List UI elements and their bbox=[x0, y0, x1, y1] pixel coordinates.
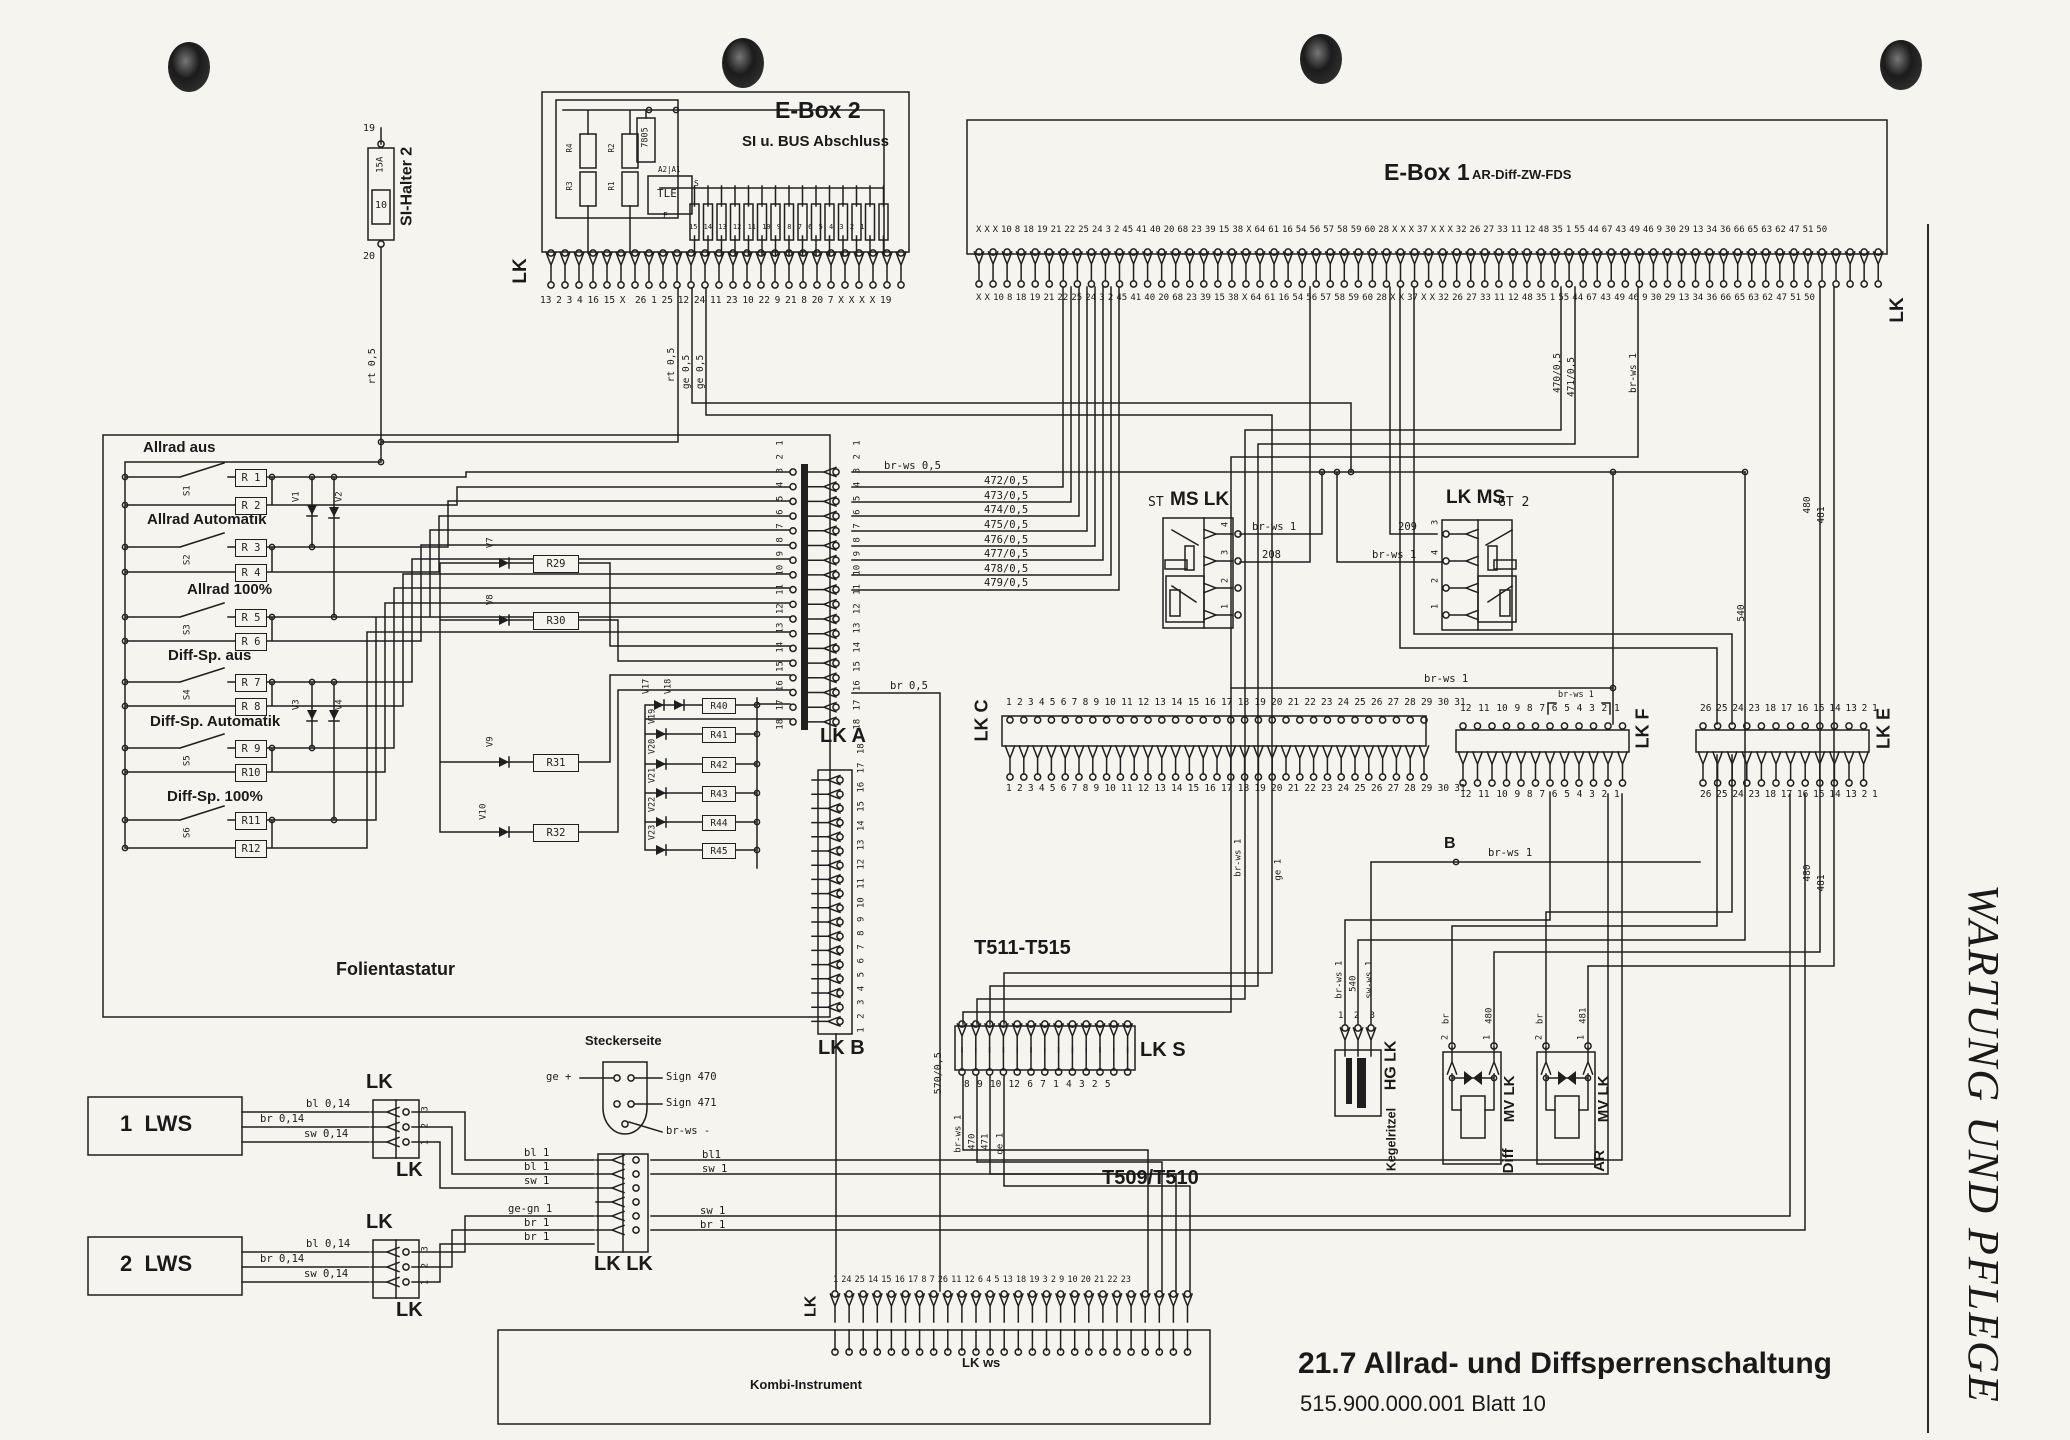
lws1-lk-top: LK bbox=[366, 1072, 393, 1093]
ebox2-drop-rt: rt 0,5 bbox=[667, 337, 677, 393]
punch-hole-3 bbox=[1300, 34, 1342, 84]
ms-gt-title: LK MS bbox=[1446, 488, 1505, 508]
ebox2-pin-f: F bbox=[663, 212, 668, 220]
keypad-sw-4: S5 bbox=[183, 741, 192, 781]
lkb-label: LK B bbox=[818, 1038, 865, 1059]
lkf-pins-bottom: 12 11 10 9 8 7 6 5 4 3 2 1 bbox=[1460, 790, 1620, 800]
resistor-r12: R12 bbox=[235, 840, 267, 858]
diode-v2: V2 bbox=[335, 482, 344, 512]
stecker-sign471: Sign 471 bbox=[666, 1098, 717, 1109]
lks-connector bbox=[957, 1021, 1132, 1075]
ebox2-strip-numbers: 15 14 13 12 11 10 9 8 7 6 5 4 3 2 1 bbox=[689, 224, 865, 231]
resistor-r6: R 6 bbox=[235, 633, 267, 651]
ms-gt-wire3: 209 bbox=[1398, 522, 1417, 533]
ebox2-ic: TLE bbox=[657, 188, 677, 200]
ebox2-drop-ge2: ge 0,5 bbox=[696, 344, 706, 400]
t511-heading: T511-T515 bbox=[974, 938, 1071, 959]
wire-brws05: br-ws 0,5 bbox=[884, 461, 941, 472]
ebox2-r4: R4 bbox=[566, 136, 574, 160]
punch-hole-1 bbox=[168, 42, 210, 92]
lke-pins-bottom: 26 25 24 23 18 17 16 15 14 13 2 1 bbox=[1700, 790, 1878, 800]
midlk-in-0: bl 1 bbox=[524, 1148, 549, 1159]
ebox2-regulator: 7805 bbox=[642, 107, 651, 167]
keypad-label: Folientastatur bbox=[336, 960, 455, 979]
resistor-r32: R32 bbox=[533, 824, 579, 842]
mvdiff-w1: 480 bbox=[1485, 998, 1494, 1034]
doc-number: 515.900.000.001 Blatt 10 bbox=[1300, 1392, 1546, 1415]
mvdiff-label1: Diff bbox=[1501, 1136, 1517, 1186]
midlk-in-1: bl 1 bbox=[524, 1162, 549, 1173]
lws1-label: 1 LWS bbox=[120, 1112, 192, 1135]
midlk-out-3: br 1 bbox=[700, 1220, 725, 1231]
ebox2-drop-ge1: ge 0,5 bbox=[682, 344, 692, 400]
resistor-r43: R43 bbox=[702, 786, 736, 802]
lkc-drop-brws1: br-ws 1 bbox=[1234, 828, 1243, 888]
punch-hole-2 bbox=[722, 38, 764, 88]
wire-rt05-si: rt 0,5 bbox=[368, 336, 379, 396]
lws1-lk-bottom: LK bbox=[396, 1160, 423, 1181]
wire-479: 479/0,5 bbox=[984, 578, 1028, 589]
lws2-label: 2 LWS bbox=[120, 1252, 192, 1275]
lkc-pins-top: 1 2 3 4 5 6 7 8 9 10 11 12 13 14 15 16 1… bbox=[1006, 698, 1466, 708]
si-pin-bottom: 20 bbox=[363, 252, 375, 263]
kombi-connector bbox=[830, 1291, 1192, 1355]
lka-pin-numbers-right: 18 17 16 15 14 13 12 11 10 9 8 7 6 5 4 3… bbox=[853, 460, 862, 730]
resistor-r29: R29 bbox=[533, 555, 579, 573]
lka-pin-numbers-left: 18 17 16 15 14 13 12 11 10 9 8 7 6 5 4 3… bbox=[776, 460, 785, 730]
ms-gt-pin2: 2 bbox=[1432, 570, 1441, 590]
wire-480-bottom: 480 bbox=[1803, 855, 1813, 891]
diode-v7: V7 bbox=[486, 528, 495, 558]
mvar-w1: 481 bbox=[1579, 998, 1588, 1034]
keypad-sw-0: S1 bbox=[183, 471, 192, 511]
resistor-r40: R40 bbox=[702, 698, 736, 714]
lkf-bracket-label: br-ws 1 bbox=[1558, 691, 1594, 700]
lkb-pin-numbers: 1 2 3 4 5 6 7 8 9 10 11 12 13 14 15 16 1… bbox=[857, 763, 866, 1033]
diode-v20: V20 bbox=[649, 731, 658, 761]
resistor-r44: R44 bbox=[702, 815, 736, 831]
lws1-w1: bl 0,14 bbox=[306, 1099, 350, 1110]
keypad-sw-2: S3 bbox=[183, 610, 192, 650]
ebox2-title: E-Box 2 bbox=[775, 98, 861, 122]
ms-st-pin1: 1 bbox=[1222, 596, 1231, 616]
ms-gt-pin1: 1 bbox=[1432, 596, 1441, 616]
kombi-label: Kombi-Instrument bbox=[750, 1378, 862, 1392]
ebox2-lk-label: LK bbox=[511, 236, 531, 306]
kombi-lk-ws: LK ws bbox=[962, 1356, 1000, 1370]
page-title: 21.7 Allrad- und Diffsperrenschaltung bbox=[1298, 1348, 1832, 1380]
keypad-title-0: Allrad aus bbox=[143, 440, 216, 456]
ms-st-wire3: 208 bbox=[1262, 550, 1281, 561]
lks-pins: 8 9 10 12 6 7 1 4 3 2 5 bbox=[964, 1080, 1111, 1090]
diode-v8: V8 bbox=[486, 585, 495, 615]
ebox2-pin-row: 13 2 3 4 16 15 X 26 1 25 12 24 11 23 10 … bbox=[540, 296, 892, 306]
lks-drop-3: ge 1 bbox=[996, 1124, 1005, 1164]
wire-570: 570/0,5 bbox=[934, 1041, 945, 1105]
lkc-drop-ge1: ge 1 bbox=[1274, 848, 1283, 892]
wire-476: 476/0,5 bbox=[984, 535, 1028, 546]
mvdiff-label2: MV LK bbox=[1502, 1067, 1518, 1131]
ebox2-pin-s: S bbox=[694, 180, 699, 188]
wiring-svg bbox=[0, 0, 2070, 1440]
si-fuse-rating: 15A bbox=[376, 135, 385, 195]
resistor-r3: R 3 bbox=[235, 539, 267, 557]
mvdiff-w2: br bbox=[1442, 1004, 1451, 1034]
ebox1-lk-label: LK bbox=[1888, 275, 1908, 345]
lws2-w3: sw 0,14 bbox=[304, 1269, 348, 1280]
stecker-title: Steckerseite bbox=[585, 1034, 662, 1048]
ms-st-title: ST bbox=[1148, 496, 1164, 510]
stecker-bottom: br-ws - bbox=[666, 1126, 710, 1137]
lws-kombi-wiring bbox=[242, 794, 1805, 1291]
lks-drop-1: 470 bbox=[968, 1122, 977, 1162]
lws2-lk-top: LK bbox=[366, 1212, 393, 1233]
ebox2-ic-pins: A2|A1 bbox=[658, 166, 681, 174]
resistor-r11: R11 bbox=[235, 812, 267, 830]
ms-gt-wire4: br-ws 1 bbox=[1372, 550, 1416, 561]
diode-v3: V3 bbox=[292, 690, 301, 720]
ms-st-pin4: 4 bbox=[1222, 514, 1231, 534]
resistor-r5: R 5 bbox=[235, 609, 267, 627]
wire-480-top: 480 bbox=[1803, 487, 1813, 523]
ms-st-title2: MS LK bbox=[1170, 490, 1229, 510]
lkc-label: LK C bbox=[973, 685, 992, 755]
lws2-w1: bl 0,14 bbox=[306, 1239, 350, 1250]
ebox2-drops-and-lkc-risers bbox=[381, 287, 1638, 1024]
si-slot: 10 bbox=[375, 201, 387, 212]
resistor-r1: R 1 bbox=[235, 469, 267, 487]
midlk-label: LK LK bbox=[594, 1254, 653, 1275]
resistor-r42: R42 bbox=[702, 757, 736, 773]
diode-v4: V4 bbox=[335, 690, 344, 720]
kegel-drop-0: br-ws 1 bbox=[1335, 951, 1344, 1009]
resistor-r9: R 9 bbox=[235, 740, 267, 758]
diode-v10: V10 bbox=[479, 797, 488, 827]
resistor-r7: R 7 bbox=[235, 674, 267, 692]
stecker-left: ge + bbox=[546, 1072, 571, 1083]
ms-gt-pin3: 3 bbox=[1432, 512, 1441, 532]
diode-v18: V18 bbox=[665, 671, 674, 701]
midlk-out-1: sw 1 bbox=[702, 1164, 727, 1175]
mvar-w2: br bbox=[1536, 1004, 1545, 1034]
midlk-out-2: sw 1 bbox=[700, 1206, 725, 1217]
kegel-drop-2: sw-ws 1 bbox=[1365, 954, 1374, 1006]
resistor-r8: R 8 bbox=[235, 698, 267, 716]
diode-v9: V9 bbox=[486, 727, 495, 757]
keypad-sw-1: S2 bbox=[183, 540, 192, 580]
ebox2-subtitle: SI u. BUS Abschluss bbox=[742, 134, 889, 150]
lkf-connector bbox=[1458, 723, 1627, 786]
lke-label: LK E bbox=[1875, 693, 1894, 763]
ms-st-pin2: 2 bbox=[1222, 570, 1231, 590]
lws2-pins: 1 2 3 bbox=[421, 1242, 430, 1290]
right-side-wiring bbox=[1231, 287, 1834, 1044]
wire-470-05: 470/0,5 bbox=[1553, 342, 1563, 404]
stecker-sign470: Sign 470 bbox=[666, 1072, 717, 1083]
midlk-in-4: br 1 bbox=[524, 1218, 549, 1229]
lkf-pins-top: 12 11 10 9 8 7 6 5 4 3 2 1 bbox=[1460, 704, 1620, 714]
ebox2-r2: R2 bbox=[608, 136, 616, 160]
wire-481-top: 481 bbox=[1817, 497, 1827, 533]
kegel-label1: Kegelritzel bbox=[1385, 1085, 1398, 1195]
wire-brws1-b: br-ws 1 bbox=[1488, 848, 1532, 859]
ms-st-wire4: br-ws 1 bbox=[1252, 522, 1296, 533]
ebox2-connector bbox=[546, 186, 905, 288]
punch-hole-4 bbox=[1880, 40, 1922, 90]
resistor-r2: R 2 bbox=[235, 497, 267, 515]
lws2-w2: br 0,14 bbox=[260, 1254, 304, 1265]
wire-473: 473/0,5 bbox=[984, 491, 1028, 502]
wire-477: 477/0,5 bbox=[984, 549, 1028, 560]
ebox1-subtitle: AR-Diff-ZW-FDS bbox=[1472, 168, 1571, 182]
diode-v17: V17 bbox=[643, 671, 652, 701]
diode-v21: V21 bbox=[649, 760, 658, 790]
mv-valve-internals bbox=[1452, 1071, 1588, 1110]
wire-474: 474/0,5 bbox=[984, 505, 1028, 516]
resistor-r10: R10 bbox=[235, 764, 267, 782]
lks-drop-2: 471 bbox=[981, 1122, 990, 1162]
wire-472: 472/0,5 bbox=[984, 476, 1028, 487]
midlk-in-5: br 1 bbox=[524, 1232, 549, 1243]
wire-540: 540 bbox=[1737, 593, 1747, 633]
diode-v23: V23 bbox=[649, 817, 658, 847]
lws1-w3: sw 0,14 bbox=[304, 1129, 348, 1140]
wire-br05: br 0,5 bbox=[890, 681, 928, 692]
lka-connector bbox=[790, 467, 839, 726]
ms-gt-title2: GT 2 bbox=[1498, 496, 1529, 510]
resistor-r4: R 4 bbox=[235, 564, 267, 582]
wire-471-05: 471/0,5 bbox=[1567, 346, 1577, 408]
lks-label: LK S bbox=[1140, 1040, 1186, 1061]
mvar-label2: MV LK bbox=[1596, 1067, 1612, 1131]
lkf-label: LK F bbox=[1634, 693, 1653, 763]
kombi-lk: LK bbox=[804, 1276, 821, 1336]
resistor-r45: R45 bbox=[702, 843, 736, 859]
lkc-connector bbox=[1005, 717, 1428, 780]
lws1-pins: 1 2 3 bbox=[421, 1102, 430, 1150]
kegel-drop-1: 540 bbox=[1349, 964, 1358, 1004]
resistor-r30: R30 bbox=[533, 612, 579, 630]
junction-b-label: B bbox=[1444, 836, 1456, 853]
lke-connector bbox=[1698, 723, 1868, 786]
si-pin-top: 19 bbox=[363, 124, 375, 135]
keypad-title-5: Diff-Sp. 100% bbox=[167, 789, 263, 805]
ebox1-pin-row-bottom: X X 10 8 18 19 21 22 25 24 3 2 45 41 40 … bbox=[976, 294, 1815, 303]
midlk-in-2: sw 1 bbox=[524, 1176, 549, 1187]
ms-st-pin3: 3 bbox=[1222, 542, 1231, 562]
si-halter-label: SI-Halter 2 bbox=[400, 126, 417, 246]
lkc-pins-bottom: 1 2 3 4 5 6 7 8 9 10 11 12 13 14 15 16 1… bbox=[1006, 784, 1466, 794]
diode-v19: V19 bbox=[649, 701, 658, 731]
diode-v1: V1 bbox=[292, 482, 301, 512]
lkb-connector bbox=[812, 775, 843, 1026]
wire-478: 478/0,5 bbox=[984, 564, 1028, 575]
wire-481-bottom: 481 bbox=[1817, 865, 1827, 901]
mvar-label1: AR bbox=[1592, 1141, 1608, 1181]
wire-475: 475/0,5 bbox=[984, 520, 1028, 531]
diode-v22: V22 bbox=[649, 789, 658, 819]
t509-heading: T509/T510 bbox=[1102, 1168, 1199, 1189]
kegel-pins: 1 2 3 bbox=[1338, 1012, 1375, 1021]
keypad-title-2: Allrad 100% bbox=[187, 582, 272, 598]
ebox2-r3: R3 bbox=[566, 174, 574, 198]
midlk-out-0: bl1 bbox=[702, 1150, 721, 1161]
ebox1-title: E-Box 1 bbox=[1384, 160, 1470, 184]
ebox2-r1: R1 bbox=[608, 174, 616, 198]
lks-drop-0: br-ws 1 bbox=[954, 1105, 963, 1163]
resistor-r31: R31 bbox=[533, 754, 579, 772]
keypad-sw-3: S4 bbox=[183, 675, 192, 715]
scanned-schematic-page: 19 20 15A 10 SI-Halter 2 rt 0,5 E-Box 2 … bbox=[0, 0, 2070, 1440]
component-outlines bbox=[88, 92, 1887, 1424]
wire-brws1-lkf: br-ws 1 bbox=[1424, 674, 1468, 685]
midlk-in-3: ge-gn 1 bbox=[508, 1204, 552, 1215]
ms-gt-pin4: 4 bbox=[1432, 542, 1441, 562]
kombi-pins: 1 24 25 14 15 16 17 8 7 26 11 12 6 4 5 1… bbox=[833, 1276, 1131, 1285]
ebox1-pin-row-top: X X X 10 8 18 19 21 22 25 24 3 2 45 41 4… bbox=[976, 226, 1827, 235]
wire-brws1-r: br-ws 1 bbox=[1629, 343, 1639, 403]
keypad-sw-5: S6 bbox=[183, 813, 192, 853]
lws2-lk-bottom: LK bbox=[396, 1300, 423, 1321]
keypad-title-4: Diff-Sp. Automatik bbox=[150, 714, 280, 730]
lws1-w2: br 0,14 bbox=[260, 1114, 304, 1125]
resistor-r41: R41 bbox=[702, 727, 736, 743]
lke-pins-top: 26 25 24 23 18 17 16 15 14 13 2 1 bbox=[1700, 704, 1878, 714]
side-banner: WARTUNG UND PFLEGE bbox=[1960, 844, 2006, 1440]
